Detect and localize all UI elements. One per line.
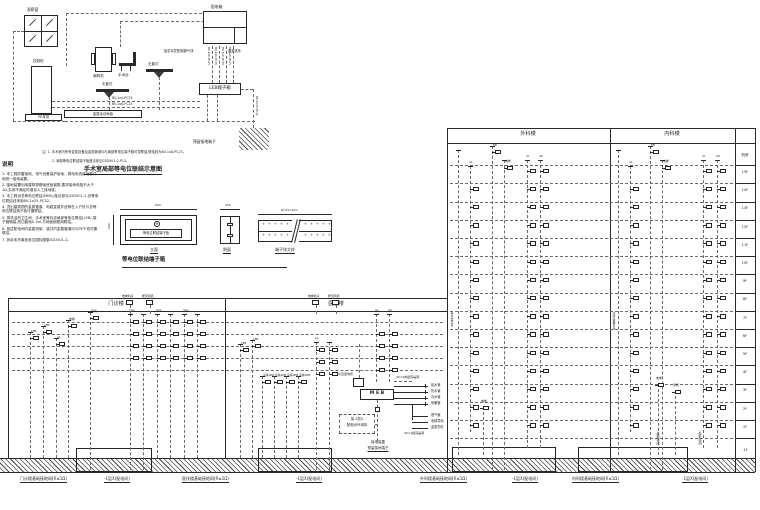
riser-tee	[128, 314, 133, 315]
row-line	[735, 420, 755, 421]
strip-terminal: +	[310, 234, 313, 237]
distribution-box	[665, 166, 671, 171]
distribution-box	[706, 405, 712, 410]
riser-tee	[525, 160, 530, 161]
distribution-box	[379, 344, 385, 349]
distribution-box	[706, 423, 712, 428]
distribution-box	[706, 205, 712, 210]
distribution-box	[543, 296, 549, 301]
riser-line	[56, 338, 57, 458]
riser-tee	[715, 160, 720, 161]
riser-line	[618, 150, 619, 455]
distribution-box	[530, 169, 536, 174]
riser-line	[492, 146, 493, 470]
riser-line	[376, 314, 377, 382]
floor-label: 1F	[743, 426, 747, 430]
distribution-box	[706, 369, 712, 374]
distribution-box	[720, 278, 726, 283]
distribution-box	[720, 351, 726, 356]
box-label: 电梯	[656, 377, 662, 380]
row-line	[735, 329, 755, 330]
box-label: LEB	[44, 324, 49, 327]
strip-terminal: +	[322, 223, 325, 226]
distribution-box	[243, 348, 249, 353]
strip-terminal: +	[280, 234, 283, 237]
distribution-box	[473, 387, 479, 392]
distribution-box	[392, 356, 398, 361]
distribution-box	[473, 369, 479, 374]
distribution-box	[473, 241, 479, 246]
distribution-box	[530, 369, 536, 374]
riser-tee	[168, 314, 173, 315]
floor-label: 2F	[743, 408, 747, 412]
distribution-box	[146, 356, 152, 361]
distribution-box	[530, 332, 536, 337]
distribution-box	[530, 405, 536, 410]
distribution-box	[720, 314, 726, 319]
distribution-box	[200, 320, 206, 325]
box-label: 设备LEB	[299, 374, 310, 377]
distribution-box	[720, 369, 726, 374]
riser-tee	[468, 166, 473, 167]
distribution-box	[543, 205, 549, 210]
riser-top-label: AL	[315, 337, 319, 340]
box-label: 电梯	[505, 160, 511, 163]
riser-top-label: AP	[716, 155, 720, 158]
distribution-box	[706, 296, 712, 301]
strip-terminal: +	[268, 234, 271, 237]
distribution-box	[530, 296, 536, 301]
box-label: 风机	[673, 384, 679, 387]
distribution-box	[706, 387, 712, 392]
distribution-box	[473, 223, 479, 228]
distribution-box	[200, 356, 206, 361]
riser-tee	[387, 314, 392, 315]
distribution-box	[633, 351, 639, 356]
distribution-box	[133, 344, 139, 349]
riser-line	[298, 376, 299, 458]
distribution-box	[173, 332, 179, 337]
row-line	[735, 402, 755, 403]
distribution-box	[473, 314, 479, 319]
distribution-box	[720, 241, 726, 246]
riser-line	[389, 314, 390, 382]
distribution-box	[187, 320, 193, 325]
riser-top-label: AP	[388, 309, 392, 312]
riser-line	[30, 332, 31, 458]
distribution-box	[93, 316, 99, 321]
distribution-box	[530, 205, 536, 210]
riser-top-label: AL	[702, 155, 706, 158]
distribution-box	[265, 380, 271, 385]
distribution-box	[543, 351, 549, 356]
riser-top-label: 3AL	[183, 309, 188, 312]
distribution-box	[706, 278, 712, 283]
rooftop-box-label: 电梯机房	[308, 295, 320, 298]
strip-terminal: +	[262, 223, 265, 226]
riser-top-label: AL	[526, 155, 530, 158]
distribution-box	[173, 344, 179, 349]
distribution-box	[633, 314, 639, 319]
distribution-box	[720, 405, 726, 410]
riser-line	[252, 340, 253, 458]
row-line	[735, 183, 755, 184]
distribution-box	[133, 320, 139, 325]
box-label: LEB	[241, 342, 246, 345]
distribution-box	[483, 406, 489, 411]
strip-terminal: +	[328, 234, 331, 237]
distribution-box	[543, 423, 549, 428]
distribution-box	[473, 260, 479, 265]
distribution-box	[720, 187, 726, 192]
box-label: 风机	[91, 310, 97, 313]
box-label: EB	[651, 144, 655, 147]
distribution-box	[633, 241, 639, 246]
riser-top-label: AL	[629, 161, 633, 164]
riser-line	[262, 376, 263, 458]
riser-line	[143, 314, 144, 470]
riser-line	[68, 320, 69, 458]
distribution-box	[332, 348, 338, 353]
riser-line	[540, 160, 541, 448]
floor-label: 14F	[742, 189, 749, 193]
riser-line	[483, 412, 484, 455]
floor-label: 9F	[743, 280, 747, 284]
distribution-box	[277, 380, 283, 385]
distribution-box	[720, 223, 726, 228]
distribution-box	[720, 205, 726, 210]
floor-label: -1F	[742, 449, 748, 453]
generated-layer: ++++++++++++++++++++机房15F14F13F12F11F10F…	[0, 0, 760, 510]
box-label: EB	[493, 144, 497, 147]
riser-tee	[182, 314, 187, 315]
riser-tee	[195, 314, 200, 315]
riser-tee	[327, 342, 332, 343]
riser-line	[286, 376, 287, 458]
riser-line	[336, 305, 337, 314]
riser-line	[90, 312, 91, 470]
distribution-box	[543, 405, 549, 410]
strip-terminal: +	[328, 223, 331, 226]
riser-tee	[314, 342, 319, 343]
distribution-box	[255, 344, 261, 349]
distribution-box	[160, 344, 166, 349]
floor-line	[12, 322, 443, 323]
rooftop-box-label: 屋顶风机	[142, 295, 154, 298]
distribution-box	[530, 187, 536, 192]
distribution-box	[187, 332, 193, 337]
distribution-box	[706, 241, 712, 246]
distribution-box	[473, 332, 479, 337]
riser-tee	[456, 150, 461, 151]
distribution-box	[146, 344, 152, 349]
distribution-box	[46, 330, 52, 335]
distribution-box	[706, 223, 712, 228]
distribution-box	[160, 356, 166, 361]
floor-label: 5F	[743, 353, 747, 357]
row-line	[735, 274, 755, 275]
row-line	[735, 220, 755, 221]
distribution-box	[200, 344, 206, 349]
distribution-box	[633, 223, 639, 228]
distribution-box	[720, 260, 726, 265]
distribution-box	[379, 368, 385, 373]
row-line	[735, 347, 755, 348]
distribution-box	[633, 387, 639, 392]
riser-tee	[141, 314, 146, 315]
distribution-box	[473, 205, 479, 210]
distribution-box	[543, 332, 549, 337]
distribution-box	[530, 387, 536, 392]
distribution-box	[160, 320, 166, 325]
distribution-box	[473, 405, 479, 410]
rooftop-box-label: 屋顶风机	[328, 295, 340, 298]
distribution-box	[658, 383, 664, 388]
distribution-box	[133, 332, 139, 337]
strip-terminal: +	[262, 234, 265, 237]
distribution-box	[173, 320, 179, 325]
distribution-box	[160, 332, 166, 337]
riser-line	[703, 160, 704, 448]
riser-top-label: AL	[469, 161, 473, 164]
riser-line	[630, 166, 631, 432]
riser-tee	[374, 314, 379, 315]
distribution-box	[706, 332, 712, 337]
distribution-box	[633, 187, 639, 192]
riser-line	[150, 305, 151, 314]
floor-label: 机房	[741, 154, 748, 158]
riser-tee	[155, 314, 160, 315]
riser-line	[274, 376, 275, 458]
distribution-box	[392, 368, 398, 373]
riser-line	[650, 146, 651, 470]
riser-line	[170, 314, 171, 458]
riser-tee	[616, 150, 621, 151]
strip-terminal: +	[316, 234, 319, 237]
riser-line	[240, 344, 241, 458]
distribution-box	[473, 296, 479, 301]
distribution-box	[720, 296, 726, 301]
distribution-box	[720, 169, 726, 174]
distribution-box	[71, 324, 77, 329]
distribution-box	[59, 342, 65, 347]
distribution-box	[379, 332, 385, 337]
distribution-box	[633, 423, 639, 428]
distribution-box	[187, 344, 193, 349]
distribution-box	[187, 356, 193, 361]
row-line	[735, 311, 755, 312]
floor-label: 7F	[743, 317, 747, 321]
box-label: LEB	[253, 338, 258, 341]
riser-line	[197, 314, 198, 458]
rooftop-box-label: 电梯机房	[122, 295, 134, 298]
floor-label: 12F	[742, 226, 749, 230]
row-line	[735, 293, 755, 294]
distribution-box	[675, 390, 681, 395]
distribution-box	[706, 260, 712, 265]
distribution-box	[473, 278, 479, 283]
strip-terminal: +	[286, 223, 289, 226]
floor-label: 8F	[743, 298, 747, 302]
distribution-box	[543, 241, 549, 246]
distribution-box	[319, 348, 325, 353]
distribution-box	[543, 169, 549, 174]
box-label: 电梯	[69, 318, 75, 321]
distribution-box	[543, 369, 549, 374]
distribution-box	[706, 314, 712, 319]
row-line	[735, 256, 755, 257]
riser-top-label: AL	[375, 309, 379, 312]
distribution-box	[319, 372, 325, 377]
riser-tee	[628, 166, 633, 167]
distribution-box	[332, 372, 338, 377]
distribution-box	[720, 423, 726, 428]
distribution-box	[720, 332, 726, 337]
distribution-box	[146, 320, 152, 325]
distribution-box	[473, 423, 479, 428]
box-label: 电梯	[663, 160, 669, 163]
distribution-box	[530, 260, 536, 265]
distribution-box	[706, 351, 712, 356]
distribution-box	[530, 314, 536, 319]
cad-drawing-canvas: 观察窗 控制柜 PE母排 麻醉机 手术台 无影灯 无影灯 金属活动地板 BV-1…	[0, 0, 760, 510]
strip-terminal: +	[274, 234, 277, 237]
distribution-box	[543, 314, 549, 319]
riser-top-label: 2AL	[156, 309, 161, 312]
strip-terminal: +	[316, 223, 319, 226]
distribution-box	[301, 380, 307, 385]
distribution-box	[200, 332, 206, 337]
distribution-box	[706, 169, 712, 174]
riser-line	[658, 389, 659, 455]
riser-line	[675, 396, 676, 455]
distribution-box	[507, 166, 513, 171]
floor-label: 13F	[742, 207, 749, 211]
riser-top-label: AP	[539, 155, 543, 158]
riser-line	[130, 314, 131, 470]
riser-line	[717, 160, 718, 448]
distribution-box	[543, 278, 549, 283]
distribution-box	[633, 405, 639, 410]
distribution-box	[633, 205, 639, 210]
distribution-box	[392, 332, 398, 337]
strip-terminal: +	[280, 223, 283, 226]
box-label: LEB	[31, 330, 36, 333]
strip-terminal: +	[268, 223, 271, 226]
distribution-box	[530, 223, 536, 228]
distribution-box	[289, 380, 295, 385]
distribution-box	[379, 356, 385, 361]
distribution-box	[530, 423, 536, 428]
floor-label: 3F	[743, 389, 747, 393]
distribution-box	[633, 278, 639, 283]
floor-label: 4F	[743, 371, 747, 375]
riser-line	[527, 160, 528, 448]
floor-label: 10F	[742, 262, 749, 266]
distribution-box	[473, 187, 479, 192]
distribution-box	[133, 356, 139, 361]
floor-label: 6F	[743, 335, 747, 339]
row-line	[735, 365, 755, 366]
strip-terminal: +	[304, 234, 307, 237]
riser-line	[157, 314, 158, 458]
distribution-box	[633, 369, 639, 374]
distribution-box	[473, 351, 479, 356]
row-line	[735, 165, 755, 166]
distribution-box	[543, 387, 549, 392]
distribution-box	[332, 360, 338, 365]
strip-terminal: +	[322, 234, 325, 237]
riser-line	[504, 160, 505, 470]
floor-label: 15F	[742, 171, 749, 175]
distribution-box	[173, 356, 179, 361]
distribution-box	[720, 387, 726, 392]
distribution-box	[319, 360, 325, 365]
distribution-box	[633, 332, 639, 337]
strip-terminal: +	[274, 223, 277, 226]
row-line	[735, 384, 755, 385]
riser-line	[662, 160, 663, 470]
strip-terminal: +	[310, 223, 313, 226]
distribution-box	[530, 351, 536, 356]
row-line	[735, 438, 755, 439]
distribution-box	[146, 332, 152, 337]
riser-line	[316, 305, 317, 314]
row-line	[735, 238, 755, 239]
riser-line	[458, 150, 459, 455]
distribution-box	[495, 150, 501, 155]
riser-line	[130, 305, 131, 314]
distribution-box	[653, 150, 659, 155]
distribution-box	[633, 260, 639, 265]
riser-tee	[701, 160, 706, 161]
distribution-box	[543, 260, 549, 265]
box-label: 电梯	[481, 400, 487, 403]
distribution-box	[530, 241, 536, 246]
riser-line	[43, 326, 44, 458]
strip-terminal: +	[286, 234, 289, 237]
riser-line	[470, 166, 471, 432]
strip-terminal: +	[304, 223, 307, 226]
distribution-box	[530, 278, 536, 283]
distribution-box	[543, 187, 549, 192]
distribution-box	[392, 344, 398, 349]
riser-tee	[538, 160, 543, 161]
floor-label: 11F	[742, 244, 749, 248]
riser-line	[184, 314, 185, 458]
distribution-box	[706, 187, 712, 192]
distribution-box	[33, 336, 39, 341]
distribution-box	[543, 223, 549, 228]
distribution-box	[633, 296, 639, 301]
box-label: AL	[57, 336, 61, 339]
row-line	[735, 202, 755, 203]
